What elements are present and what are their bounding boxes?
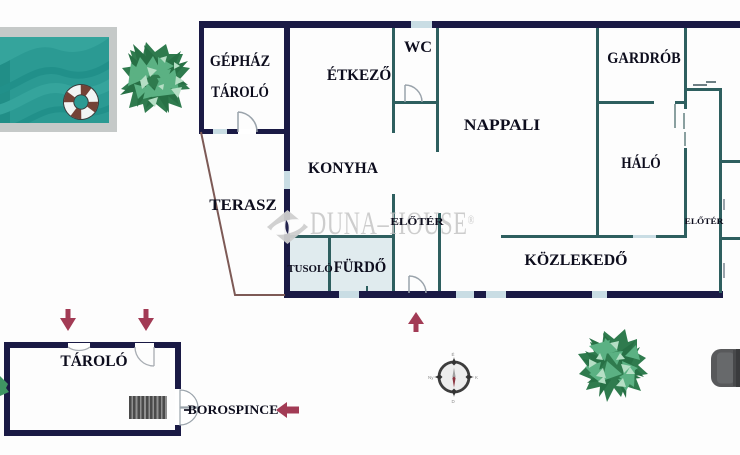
svg-text:K: K [475,375,478,380]
svg-text:D: D [452,399,456,404]
svg-text:Ny: Ny [428,375,434,380]
svg-text:É: É [452,351,455,357]
